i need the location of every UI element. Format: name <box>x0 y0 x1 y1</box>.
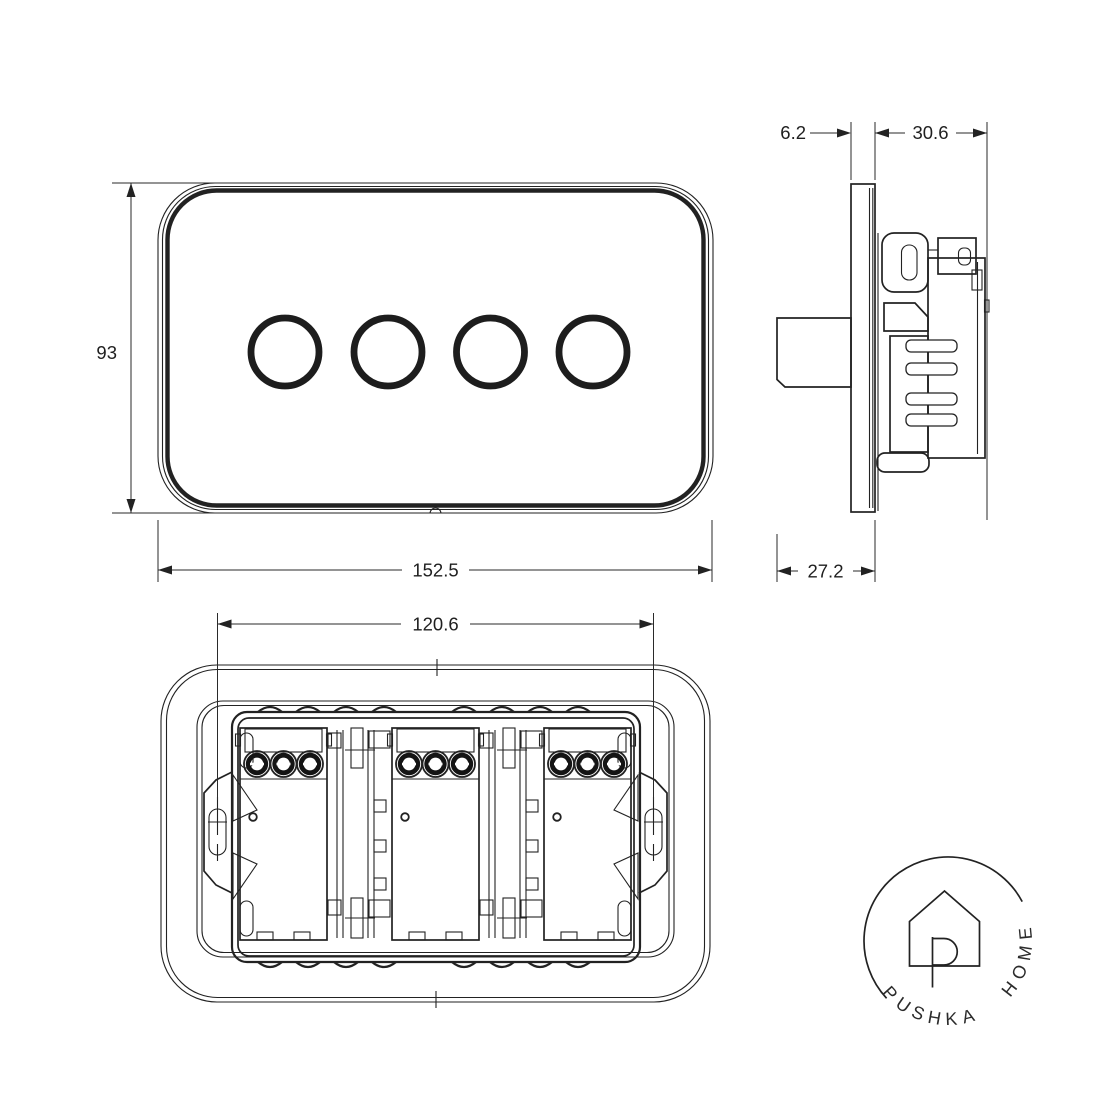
arrowhead-right-icon <box>837 129 851 138</box>
dimension-width: 152.5 <box>158 520 712 582</box>
front-view: 93 152.5 <box>96 183 713 582</box>
dimension-knob-projection: 27.2 <box>777 520 875 582</box>
logo-letter: K <box>945 1009 958 1030</box>
dimension-plate-thickness: 6.2 <box>780 122 875 180</box>
back-view: 120.6 <box>161 613 710 1008</box>
logo-letter: M <box>1014 944 1036 962</box>
top-clip-slot <box>959 248 971 265</box>
fixing-centres-label: 120.6 <box>412 614 458 635</box>
height-dimension-label: 93 <box>96 342 117 363</box>
arrowhead-right-icon <box>973 129 987 138</box>
technical-drawing-canvas: 93 152.5 <box>0 0 1100 1100</box>
arrowhead-down-icon <box>127 499 136 513</box>
plate-thickness-label: 6.2 <box>780 122 806 143</box>
dimmer-knob-circle <box>457 318 525 386</box>
lower-foot <box>877 453 929 472</box>
upper-claw-slot <box>902 245 918 280</box>
frame-outer-outline <box>232 712 640 962</box>
logo-letter: H <box>998 978 1022 1001</box>
arrowhead-left-icon <box>218 620 232 629</box>
logo-letter: S <box>909 1002 928 1025</box>
house-icon <box>910 891 980 966</box>
arrowhead-left-icon <box>875 129 889 138</box>
dimmer-knob-cutouts <box>251 318 627 386</box>
arrowhead-right-icon <box>861 567 875 576</box>
terminal-prong <box>906 414 957 426</box>
logo-circle-arc <box>864 857 1022 998</box>
logo-letter: E <box>1015 927 1036 941</box>
module-gap-channel-2 <box>480 728 542 938</box>
arrowhead-left-icon <box>158 566 172 575</box>
dimmer-module-1 <box>236 728 332 940</box>
width-dimension-label: 152.5 <box>412 560 458 581</box>
knob-profile <box>777 318 851 387</box>
arrowhead-up-icon <box>127 183 136 197</box>
backplate-outer-outline <box>161 665 710 1002</box>
faceplate-profile <box>851 184 875 512</box>
terminal-prong <box>906 363 957 375</box>
module-gap-channel-1 <box>328 728 390 938</box>
arrowhead-left-icon <box>777 567 791 576</box>
module-body-profile <box>928 258 985 458</box>
logo-letter: A <box>960 1005 977 1027</box>
knob-projection-label: 27.2 <box>807 561 843 582</box>
mid-wedge <box>884 303 928 331</box>
side-view: 6.2 30.6 27.2 <box>777 122 989 582</box>
arrowhead-right-icon <box>640 620 654 629</box>
back-recess-outline <box>197 701 674 957</box>
knob-bevel-line <box>777 380 785 388</box>
upper-claw <box>882 233 928 292</box>
dimension-mechanism-depth: 30.6 <box>875 122 987 520</box>
p-monogram-bowl <box>933 939 958 966</box>
arrowhead-right-icon <box>698 566 712 575</box>
logo-curved-text: PUSHKAHOME <box>879 927 1037 1030</box>
terminal-prong <box>906 340 957 352</box>
dimmer-knob-circle <box>354 318 422 386</box>
dimmer-knob-circle <box>559 318 627 386</box>
brand-logo: PUSHKAHOME <box>864 857 1036 1029</box>
dimmer-knob-circle <box>251 318 319 386</box>
extension-lines <box>851 122 875 180</box>
mounting-frame <box>204 707 667 967</box>
faceplate-profile-inner-lines <box>870 188 873 508</box>
logo-letter: O <box>1008 962 1032 983</box>
back-recess-inner-outline <box>202 706 669 953</box>
dimmer-module-2 <box>388 728 484 940</box>
switch-mechanism-profile <box>877 233 989 511</box>
dimmer-module-3 <box>540 728 636 940</box>
logo-letter: H <box>926 1007 942 1029</box>
mechanism-depth-label: 30.6 <box>912 122 948 143</box>
terminal-prong <box>906 393 957 405</box>
